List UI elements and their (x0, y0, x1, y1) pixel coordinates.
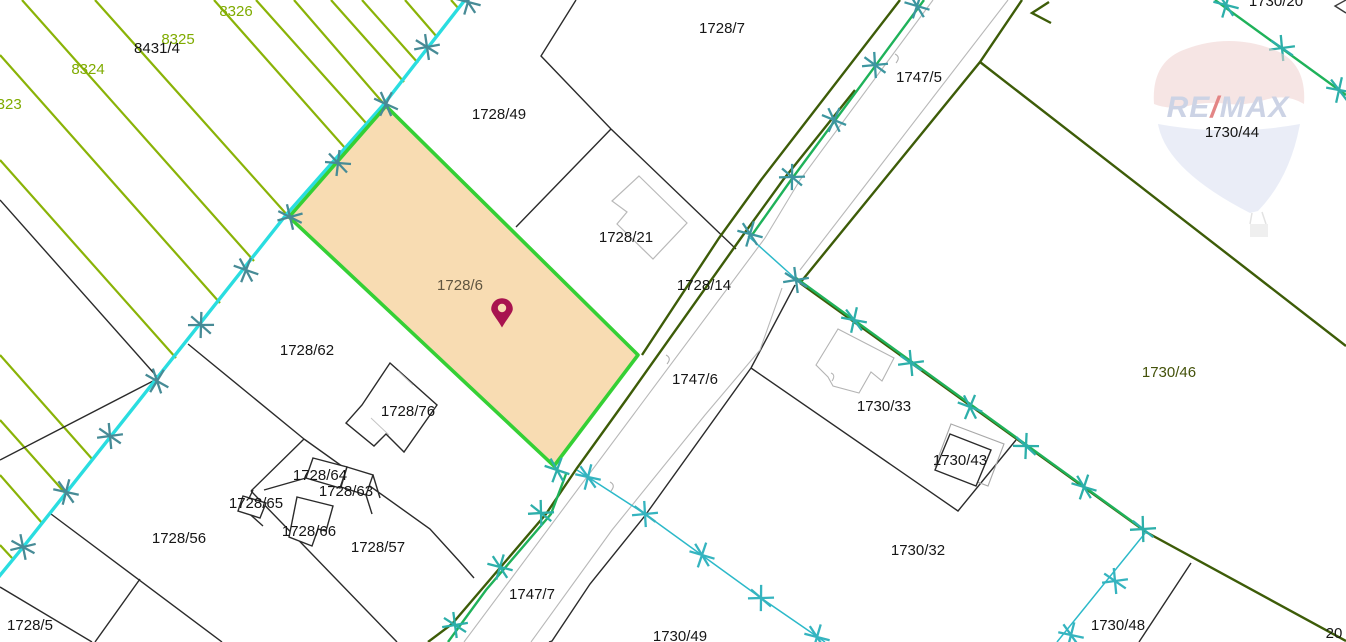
svg-text:20: 20 (1326, 625, 1343, 642)
svg-text:1747/7: 1747/7 (509, 586, 555, 603)
svg-text:1728/7: 1728/7 (699, 20, 745, 37)
svg-text:1730/44: 1730/44 (1205, 124, 1259, 141)
svg-text:1730/49: 1730/49 (653, 628, 707, 642)
svg-text:1728/65: 1728/65 (229, 495, 283, 512)
svg-text:8326: 8326 (219, 3, 252, 20)
svg-text:1728/63: 1728/63 (319, 483, 373, 500)
svg-text:1728/21: 1728/21 (599, 229, 653, 246)
svg-text:RE/MAX: RE/MAX (1167, 91, 1291, 124)
svg-text:1728/56: 1728/56 (152, 530, 206, 547)
svg-text:1747/5: 1747/5 (896, 69, 942, 86)
svg-text:1728/64: 1728/64 (293, 467, 347, 484)
svg-text:1728/57: 1728/57 (351, 539, 405, 556)
svg-text:8431/4: 8431/4 (134, 40, 180, 57)
svg-text:1730/43: 1730/43 (933, 452, 987, 469)
svg-text:1728/62: 1728/62 (280, 342, 334, 359)
svg-text:1728/66: 1728/66 (282, 523, 336, 540)
svg-text:1730/48: 1730/48 (1091, 617, 1145, 634)
svg-text:1728/49: 1728/49 (472, 106, 526, 123)
svg-text:1730/46: 1730/46 (1142, 364, 1196, 381)
svg-text:1730/20: 1730/20 (1249, 0, 1303, 10)
svg-text:1730/32: 1730/32 (891, 542, 945, 559)
svg-text:1728/14: 1728/14 (677, 277, 731, 294)
svg-text:1728/6: 1728/6 (437, 277, 483, 294)
svg-text:1730/33: 1730/33 (857, 398, 911, 415)
svg-text:1728/76: 1728/76 (381, 403, 435, 420)
svg-text:8323: 8323 (0, 96, 22, 113)
svg-text:1747/6: 1747/6 (672, 371, 718, 388)
svg-text:8324: 8324 (71, 61, 104, 78)
svg-text:1728/5: 1728/5 (7, 617, 53, 634)
